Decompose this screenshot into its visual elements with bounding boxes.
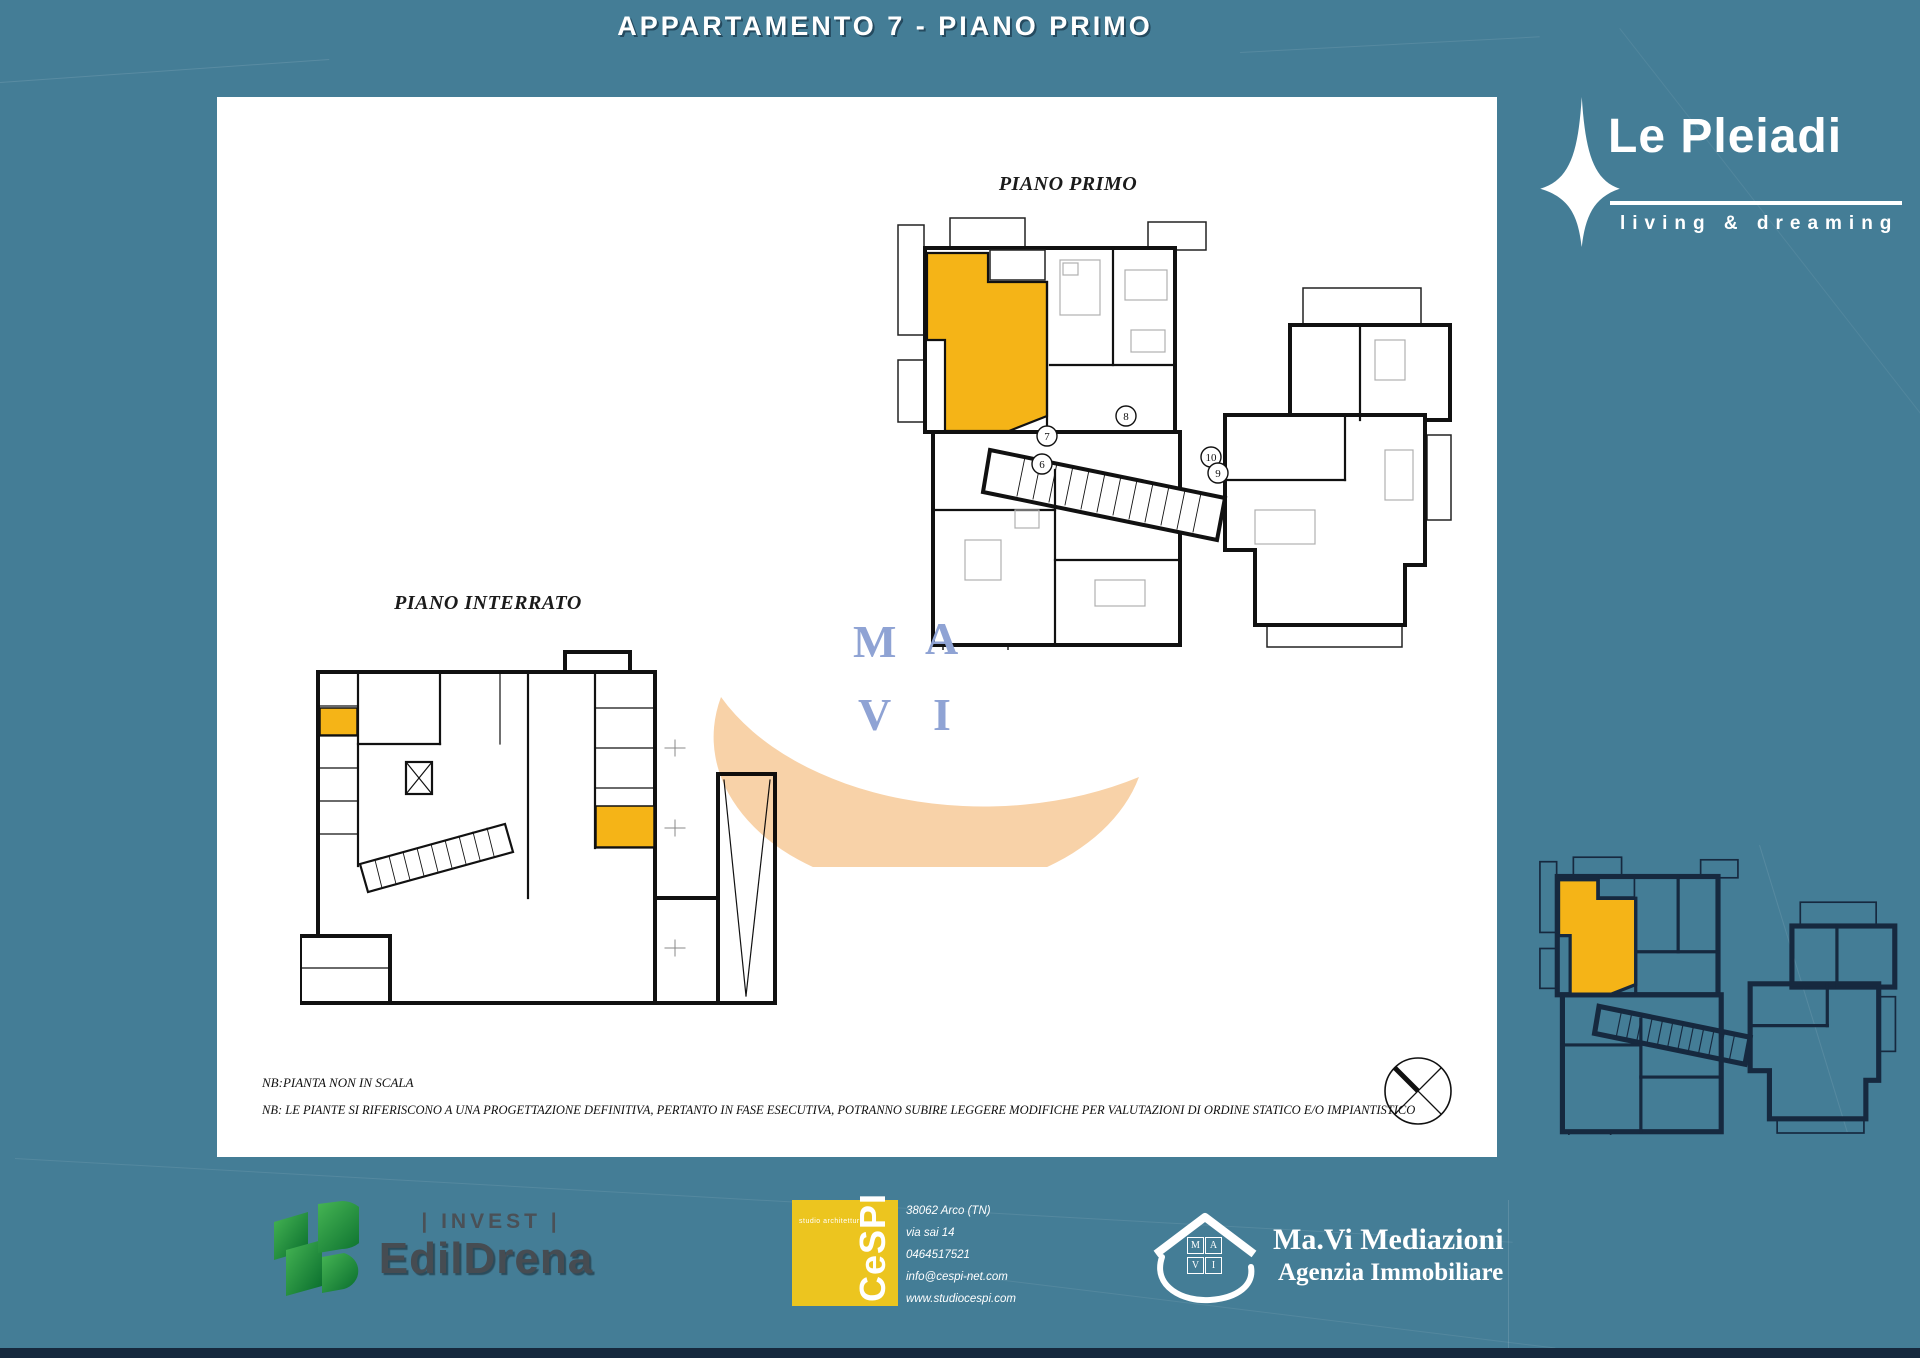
cespi-phone: 0464517521 <box>906 1244 1016 1266</box>
brand-name: Le Pleiadi <box>1608 109 1842 164</box>
bottom-strip <box>0 1348 1920 1358</box>
plan-sheet: PIANO PRIMO PIANO INTERRATO <box>217 97 1497 1157</box>
watermark-letter: A <box>925 616 958 662</box>
page-title: APPARTAMENTO 7 - PIANO PRIMO <box>0 11 1770 42</box>
cespi-contact: 38062 Arco (TN) via sai 14 0464517521 in… <box>906 1200 1016 1310</box>
key-plan-mini <box>1538 852 1898 1135</box>
brand-underline <box>1610 201 1902 205</box>
piano-interrato-label: PIANO INTERRATO <box>388 592 588 615</box>
mavi-name: Ma.Vi Mediazioni <box>1273 1223 1504 1257</box>
cespi-name: CeSPI <box>852 1204 894 1302</box>
watermark-letter: I <box>933 692 951 738</box>
mavi-letter-grid: M A V I <box>1187 1237 1220 1274</box>
cespi-address2: via sai 14 <box>906 1222 1016 1244</box>
poster-page: APPARTAMENTO 7 - PIANO PRIMO PIANO PRIMO… <box>0 0 1920 1358</box>
note-scale: NB:PIANTA NON IN SCALA <box>262 1075 414 1091</box>
cespi-logo: studio architettura CeSPI <box>792 1200 898 1306</box>
mavi-letter: M <box>1187 1237 1204 1254</box>
highlighted-cellar-1 <box>320 708 357 735</box>
le-pleiadi-logo: Le Pleiadi living & dreaming <box>1540 95 1910 265</box>
cespi-email: info@cespi-net.com <box>906 1266 1016 1288</box>
cespi-address1: 38062 Arco (TN) <box>906 1200 1016 1222</box>
cespi-website: www.studiocespi.com <box>906 1288 1016 1310</box>
piano-primo-floorplan: 7 8 6 10 9 <box>895 210 1455 650</box>
note-disclaimer: NB: LE PIANTE SI RIFERISCONO A UNA PROGE… <box>262 1103 1415 1118</box>
mavi-subtitle: Agenzia Immobiliare <box>1278 1259 1503 1287</box>
mavi-logo: M A V I Ma.Vi Mediazioni Agenzia Immobil… <box>1148 1205 1528 1315</box>
brand-tagline: living & dreaming <box>1620 213 1898 235</box>
mavi-letter: A <box>1205 1237 1222 1254</box>
invest-label: | INVEST | <box>386 1210 596 1234</box>
piano-primo-label: PIANO PRIMO <box>968 173 1168 196</box>
edildrena-mark-icon <box>274 1200 359 1310</box>
highlighted-cellar-2 <box>596 806 654 847</box>
watermark-letter: V <box>858 692 891 738</box>
mavi-letter: V <box>1187 1257 1204 1274</box>
mavi-letter: I <box>1205 1257 1222 1274</box>
watermark-letter: M <box>853 619 896 665</box>
deco-line <box>0 59 329 83</box>
edildrena-logo: | INVEST | EdilDrena <box>256 1198 586 1318</box>
mavi-watermark-swoosh <box>707 642 1147 867</box>
edildrena-name: EdilDrena <box>351 1234 621 1284</box>
